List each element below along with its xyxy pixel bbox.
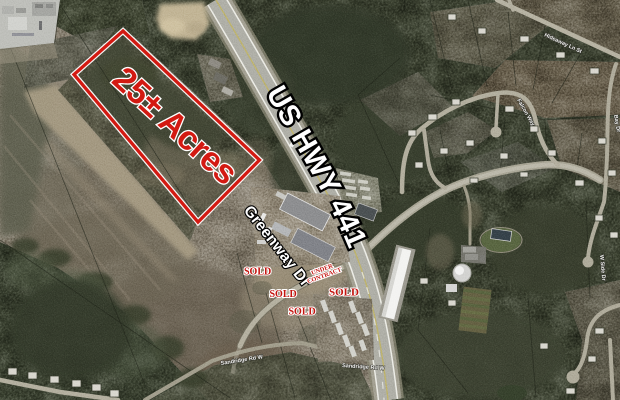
svg-text:SOLD: SOLD	[289, 307, 316, 318]
svg-text:SOLD: SOLD	[244, 267, 271, 278]
svg-text:SOLD: SOLD	[270, 289, 297, 300]
svg-text:SOLD: SOLD	[329, 287, 359, 299]
